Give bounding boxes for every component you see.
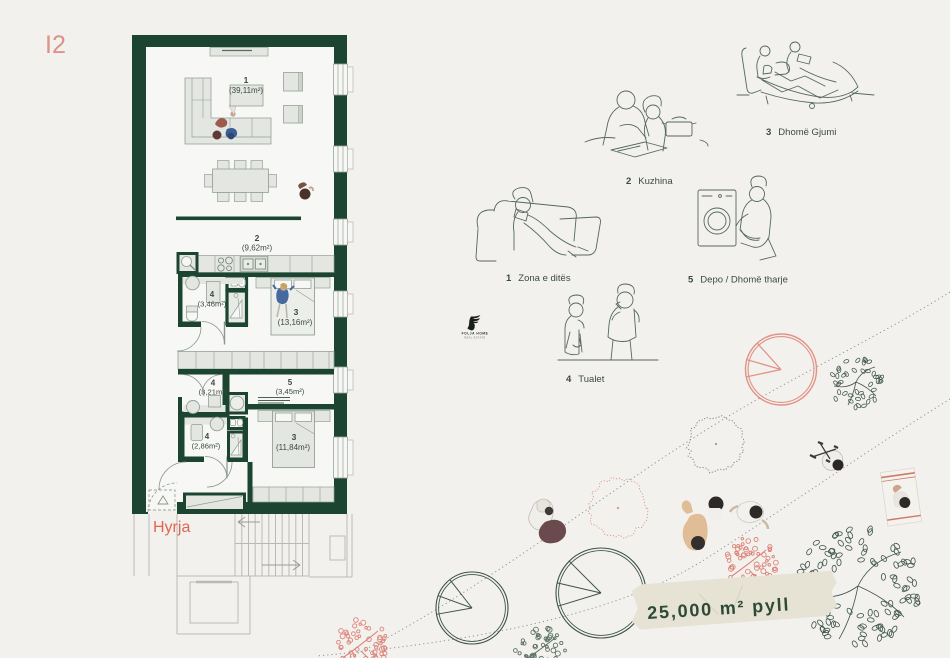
svg-text:4: 4 [210,290,215,299]
svg-text:5: 5 [288,378,293,387]
svg-text:5Depo / Dhomë tharje: 5Depo / Dhomë tharje [688,275,788,286]
svg-text:(2,86m²): (2,86m²) [192,442,221,451]
svg-text:2: 2 [255,233,260,243]
svg-text:(39,11m²): (39,11m²) [229,86,263,95]
svg-text:I2: I2 [45,31,66,59]
svg-text:Hyrja: Hyrja [153,519,190,536]
svg-text:(3,45m²): (3,45m²) [276,387,305,396]
svg-text:FOLJA HOME: FOLJA HOME [462,332,489,336]
svg-text:3: 3 [294,307,299,317]
svg-text:REAL ESTATE: REAL ESTATE [464,337,485,340]
svg-text:4: 4 [205,432,210,441]
svg-text:3: 3 [292,432,297,442]
svg-text:(11,84m²): (11,84m²) [276,443,310,452]
svg-text:(9,62m²): (9,62m²) [242,244,273,253]
svg-text:4: 4 [211,379,216,388]
svg-text:(13,16m²): (13,16m²) [278,318,313,327]
svg-text:1: 1 [244,75,249,85]
svg-text:(3,46m²): (3,46m²) [198,300,227,309]
